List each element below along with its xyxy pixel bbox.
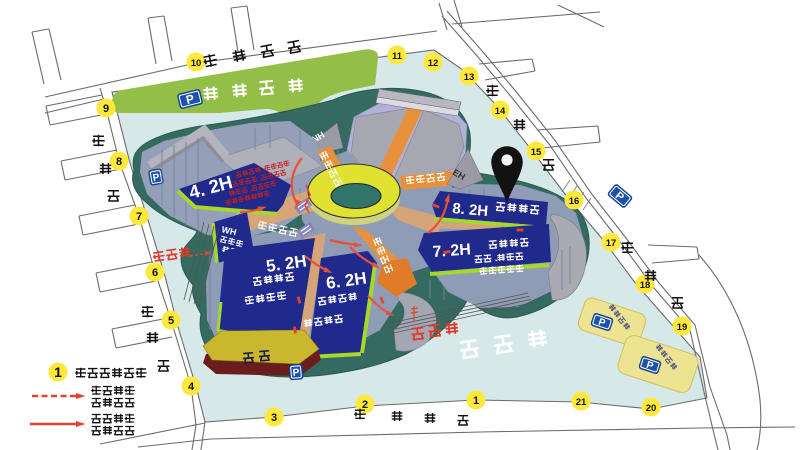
svg-text:14: 14 — [495, 106, 506, 117]
svg-text:7: 7 — [136, 211, 142, 223]
svg-text:2: 2 — [362, 399, 368, 411]
svg-text:15: 15 — [531, 147, 542, 158]
svg-text:7. 2H: 7. 2H — [432, 241, 471, 261]
svg-text:11: 11 — [392, 51, 403, 62]
svg-text:18: 18 — [640, 280, 651, 291]
svg-text:10: 10 — [191, 58, 202, 69]
svg-text:3: 3 — [271, 412, 277, 424]
svg-text:9: 9 — [103, 103, 109, 115]
svg-text:12: 12 — [428, 58, 439, 69]
svg-text:20: 20 — [646, 403, 657, 414]
svg-text:1: 1 — [473, 395, 479, 407]
svg-text:16: 16 — [569, 196, 580, 207]
svg-text:8. 2H: 8. 2H — [452, 200, 489, 220]
svg-text:13: 13 — [464, 72, 475, 83]
svg-text:4: 4 — [188, 381, 195, 393]
svg-text:21: 21 — [576, 397, 587, 408]
svg-text:19: 19 — [677, 322, 688, 333]
svg-text:1: 1 — [54, 364, 62, 380]
svg-text:8: 8 — [116, 156, 122, 168]
svg-text:17: 17 — [606, 238, 617, 249]
svg-text:6: 6 — [152, 267, 158, 279]
svg-text:5: 5 — [168, 315, 174, 327]
svg-text:P: P — [292, 367, 300, 379]
